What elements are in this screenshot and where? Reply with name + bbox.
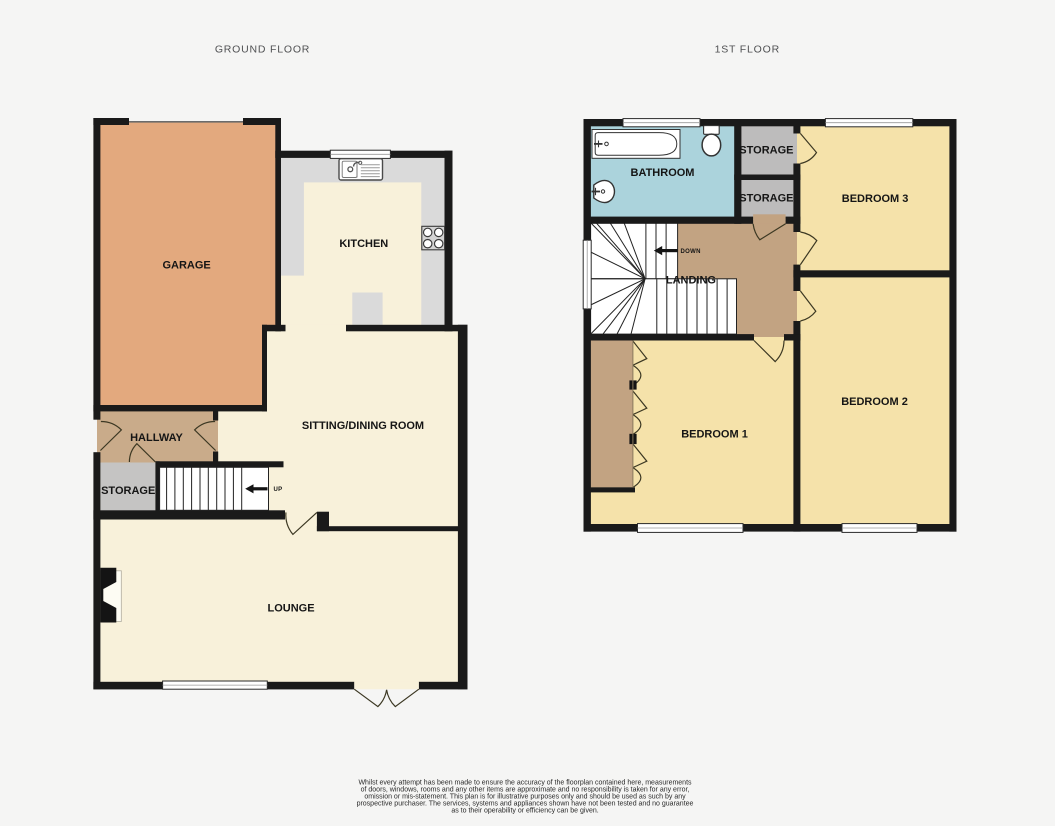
svg-text:as to their operability or eff: as to their operability or efficiency ca… bbox=[451, 807, 598, 814]
svg-text:UP: UP bbox=[274, 487, 283, 493]
svg-text:LANDING: LANDING bbox=[666, 274, 716, 286]
svg-text:1ST FLOOR: 1ST FLOOR bbox=[715, 44, 780, 56]
svg-text:of doors, windows, rooms and a: of doors, windows, rooms and any other i… bbox=[361, 786, 690, 793]
svg-text:HALLWAY: HALLWAY bbox=[130, 432, 183, 444]
svg-text:Whilst every attempt has been: Whilst every attempt has been made to en… bbox=[358, 779, 692, 786]
svg-text:SITTING/DINING ROOM: SITTING/DINING ROOM bbox=[302, 420, 424, 432]
svg-text:STORAGE: STORAGE bbox=[101, 485, 155, 497]
svg-text:STORAGE: STORAGE bbox=[739, 145, 793, 157]
svg-text:BEDROOM 3: BEDROOM 3 bbox=[842, 193, 909, 205]
svg-text:prospective purchaser. The ser: prospective purchaser. The services, sys… bbox=[357, 800, 694, 807]
svg-text:omission or mis-statement. Thi: omission or mis-statement. This plan is … bbox=[364, 793, 686, 800]
svg-text:BEDROOM 1: BEDROOM 1 bbox=[681, 428, 748, 440]
svg-text:BATHROOM: BATHROOM bbox=[631, 167, 695, 179]
svg-text:GROUND FLOOR: GROUND FLOOR bbox=[215, 44, 310, 56]
svg-text:STORAGE: STORAGE bbox=[739, 193, 793, 205]
svg-text:LOUNGE: LOUNGE bbox=[267, 603, 314, 615]
svg-text:KITCHEN: KITCHEN bbox=[339, 238, 388, 250]
svg-text:DOWN: DOWN bbox=[681, 249, 701, 255]
svg-text:BEDROOM 2: BEDROOM 2 bbox=[841, 396, 908, 408]
svg-text:GARAGE: GARAGE bbox=[162, 260, 210, 272]
